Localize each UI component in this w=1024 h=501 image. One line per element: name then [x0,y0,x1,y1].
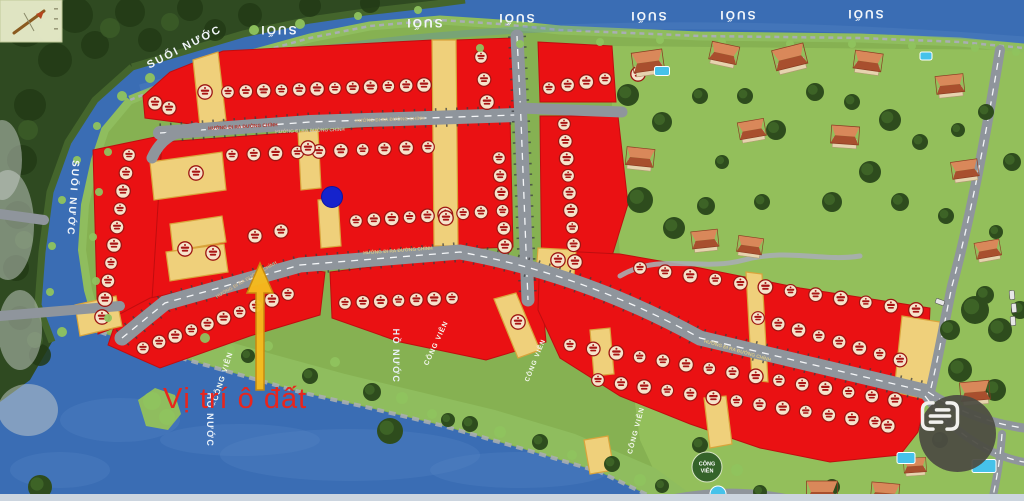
sold-stamp [475,51,488,64]
sold-stamp-mark [107,261,114,263]
sold-stamp-mark [349,85,357,87]
sold-stamp-mark [891,398,900,400]
sold-stamp [346,81,360,95]
sold-stamp [679,357,694,372]
sold-stamp-mark [413,300,419,302]
sold-stamp-mark [825,413,833,415]
sold-stamp-mark [362,297,364,299]
sold-stamp-mark [228,153,235,155]
sold-stamp-mark [640,385,649,387]
sold-stamp-ring [758,280,773,295]
sold-stamp-mark [271,151,280,153]
sold-stamp-mark [709,395,718,397]
tree [861,163,873,175]
sold-stamp-ring [367,213,381,227]
sold-stamp-mark [396,301,402,303]
sold-stamp-mark [582,80,591,82]
sold-stamp-mark [838,337,840,339]
sold-stamp-mark [497,191,506,193]
sold-stamp-ring [599,73,612,86]
sold-stamp-mark [431,300,438,302]
scan-button[interactable] [919,395,996,472]
tree [656,480,664,488]
sold-stamp-mark [787,289,794,291]
sold-stamp-mark [122,171,130,173]
sold-stamp-mark [107,276,109,278]
sold-stamp-mark [499,209,506,211]
sold-stamp-mark [736,397,738,399]
sold-stamp [832,335,846,349]
sold-stamp-ring [869,416,882,429]
tree [464,418,473,427]
tree [716,156,724,164]
sold-stamp [152,335,166,349]
bush [971,44,979,52]
river-label: SUỐI [629,9,666,24]
sold-stamp-mark [851,413,853,415]
sold-stamp-ring [427,291,442,306]
sold-stamp-ring [511,315,525,329]
sold-stamp-ring [661,384,674,397]
sold-stamp-mark [116,222,118,224]
tree [30,477,43,490]
sold-stamp [753,398,767,412]
sold-stamp-ring [832,335,846,349]
sold-stamp-ring [421,209,435,223]
sold-stamp-mark [502,247,509,249]
sold-stamp [480,95,495,110]
sold-stamp-mark [334,84,336,86]
tree [242,350,250,358]
sold-stamp-ring [775,401,790,416]
sold-stamp-ring [152,335,166,349]
sold-stamp-mark [181,247,189,249]
sold-stamp-mark [813,295,819,297]
sold-stamp-mark [751,374,760,376]
sold-stamp-mark [762,288,769,290]
sold-stamp-ring [494,186,509,201]
sold-stamp-mark [504,241,506,243]
sold-stamp-mark [204,87,206,89]
sold-stamp-mark [567,208,576,210]
sold-stamp-mark [855,346,864,348]
sold-stamp [409,293,423,307]
forest-tree [238,3,262,27]
sold-stamp-mark [236,310,243,312]
tree [619,86,631,98]
sold-stamp-ring [586,342,600,356]
sold-stamp-mark [189,331,195,333]
sold-stamp-mark [913,311,920,313]
bush [596,38,604,46]
sold-stamp-ring [417,78,432,93]
sold-stamp-mark [776,381,782,383]
sold-stamp [421,209,435,223]
tree [756,196,765,205]
sold-stamp-mark [316,84,318,86]
sold-stamp-mark [661,270,669,272]
sold-stamp-mark [555,261,561,263]
sold-stamp [206,246,220,260]
sold-stamp-ring [329,82,342,95]
sold-stamp-mark [409,213,411,215]
sold-stamp-mark [757,314,759,316]
sold-stamp-mark [318,147,320,149]
sold-stamp-mark [350,88,356,90]
sold-stamp-mark [284,292,291,294]
sold-stamp-ring [683,268,698,283]
forest-tree [14,89,46,121]
forest-tree [18,120,38,140]
sold-stamp-mark [592,344,594,346]
sold-stamp-mark [896,358,904,360]
sold-stamp-mark [659,358,667,360]
sold-stamp-ring [185,324,198,337]
tree [442,414,450,422]
sold-stamp-mark [445,213,447,215]
sold-stamp-mark [794,328,803,330]
sold-stamp-mark [643,382,645,384]
sold-stamp-ring [563,186,577,200]
legend-mark [54,8,58,10]
tree [942,322,953,333]
sold-stamp-mark [757,405,763,407]
sold-stamp-mark [915,305,917,307]
sold-stamp-ring [498,239,513,254]
sold-stamp-mark [837,299,844,301]
river-label: SUỐI [846,7,883,22]
sold-stamp-mark [168,103,170,105]
sold-stamp-mark [662,273,668,275]
sold-stamp-mark [571,260,580,262]
sold-stamp-mark [278,88,285,90]
sold-stamp-mark [712,277,719,279]
sold-stamp-mark [761,285,770,287]
sold-stamp-mark [484,103,491,105]
sold-stamp-ring [637,380,652,395]
sold-stamp-mark [755,371,757,373]
sold-stamp-mark [602,80,608,82]
sold-stamp [248,229,262,243]
sold-stamp-mark [554,258,562,260]
sold-stamp-mark [815,334,822,336]
sold-stamp-mark [639,264,641,266]
sold-stamp-ring [893,353,907,367]
sold-stamp-mark [790,287,792,289]
sold-stamp-ring [222,86,235,99]
sold-stamp-mark [381,150,387,152]
sold-stamp-ring [399,141,414,156]
sold-stamp-mark [204,325,210,327]
bush [249,25,259,35]
sold-stamp-ring [888,393,903,408]
sold-stamp-ring [226,149,239,162]
sold-stamp-mark [729,370,737,372]
sold-stamp-ring [730,395,743,408]
sold-stamp-mark [557,255,559,257]
forest-tree [38,43,72,77]
sold-stamp-mark [229,156,235,158]
bottom-edge-strip [0,494,1024,501]
sold-stamp-mark [272,154,279,156]
sold-stamp [771,317,785,331]
sold-stamp-mark [561,139,569,141]
tree [534,436,543,445]
sold-stamp-mark [497,176,503,178]
sold-stamp-mark [104,279,112,281]
sold-stamp-ring [373,294,388,309]
sold-stamp-mark [604,75,606,77]
sold-stamp-mark [171,334,180,336]
tree [665,219,677,231]
sold-stamp-mark [423,80,425,82]
sold-stamp-ring [822,408,836,422]
park-badge-label: VIÊN [701,467,714,475]
pool [920,52,932,60]
sold-stamp-mark [887,421,889,423]
sold-stamp-mark [314,90,321,92]
sold-stamp-mark [165,106,173,108]
sold-stamp [859,296,872,309]
sold-stamp-mark [344,299,346,301]
sold-stamp [110,220,124,234]
sold-stamp [427,291,442,306]
sold-stamp-mark [877,355,883,357]
sold-stamp-mark [501,244,510,246]
sold-stamp [334,143,349,158]
bush [104,314,112,322]
sold-stamp-mark [352,83,354,85]
sold-stamp [114,203,127,216]
sold-stamp-mark [869,397,875,399]
sold-stamp-mark [585,77,587,79]
sold-stamp-mark [385,84,392,86]
sold-stamp-ring [206,246,220,260]
sold-stamp [634,262,647,275]
sold-stamp-mark [545,86,552,88]
sold-stamp-mark [125,153,132,155]
water-highlight [160,424,320,456]
sold-stamp [561,78,575,92]
sold-stamp-mark [712,280,718,282]
sold-stamp-ring [439,211,453,225]
sold-stamp-mark [342,304,348,306]
fog [0,290,42,370]
sold-stamp-mark [752,377,759,379]
lake-label: HỒ NƯỚC [391,329,402,384]
sold-stamp-mark [359,148,366,150]
sold-stamp-mark [477,55,484,57]
tree [914,136,923,145]
sold-stamp-ring [752,312,765,325]
sold-stamp [222,86,235,99]
sold-stamp [216,311,231,326]
tree [1005,155,1015,165]
sold-stamp [726,366,740,380]
sold-stamp-ring [884,299,898,313]
sold-stamp-ring [564,203,579,218]
sold-stamp-ring [859,296,872,309]
sold-stamp [367,213,381,227]
sold-stamp-mark [517,317,519,319]
sold-stamp-mark [268,298,277,300]
tree [380,421,394,435]
bush [427,409,437,419]
tree [986,381,998,393]
sold-stamp-mark [190,326,192,328]
sold-stamp-mark [377,302,384,304]
sold-stamp-mark [442,216,450,218]
sold-stamp-ring [734,276,748,290]
sold-stamp-ring [592,374,605,387]
sold-stamp-ring [795,377,809,391]
tree [824,194,835,205]
tree [699,199,709,209]
sold-stamp [559,151,574,166]
sold-stamp-mark [687,276,694,278]
sold-stamp-mark [503,224,505,226]
tree [990,226,998,234]
sold-stamp-mark [816,337,822,339]
sold-stamp-mark [430,296,439,298]
sold-stamp-mark [686,273,695,275]
sold-stamp-ring [497,222,511,236]
sold-stamp-mark [828,410,830,412]
sold-stamp-mark [788,292,794,294]
sold-stamp-mark [795,331,802,333]
tree [754,486,762,494]
sold-stamp-mark [802,409,809,411]
sold-stamp-mark [562,142,568,144]
sold-stamp-mark [111,246,118,248]
sold-stamp-mark [729,373,735,375]
sold-stamp [497,222,511,236]
sold-stamp-ring [282,288,295,301]
sold-stamp [734,276,748,290]
sold-stamp-ring [350,215,363,228]
bush [494,426,506,438]
sold-stamp-mark [254,231,256,233]
sold-stamp-mark [775,325,781,327]
sold-stamp [799,405,812,418]
sold-stamp-mark [113,225,121,227]
sold-stamp-ring [356,143,369,156]
sold-stamp-mark [845,390,852,392]
park-badge-label: CÔNG [699,460,716,468]
sold-stamp-mark [734,402,740,404]
sold-stamp-mark [104,294,106,296]
scan-text-icon [919,395,961,437]
forest-tree [100,18,120,38]
sold-stamp-mark [836,343,842,345]
sold-stamp-ring [110,220,124,234]
sold-stamp-ring [474,205,488,219]
sold-stamp-mark [733,399,740,401]
sold-stamp-ring [105,257,118,270]
sold-stamp-mark [564,174,571,176]
sold-stamp [373,294,388,309]
sold-stamp-ring [771,317,785,331]
sold-stamp-ring [98,292,113,307]
sold-stamp-mark [195,168,197,170]
sold-stamp-mark [689,271,691,273]
sold-stamp-mark [305,149,311,151]
sold-stamp-mark [360,150,366,152]
photo-canvas: SUỐISUỐISUỐISUỐISUỐISUỐISUỐI NƯỚCSUỐI NƯ… [0,0,1024,501]
sold-stamp-mark [154,98,156,100]
sold-stamp-mark [481,80,487,82]
sold-stamp-ring [239,85,253,99]
water-highlight [10,452,110,488]
sold-stamp-mark [686,392,694,394]
sold-stamp-ring [480,95,495,110]
sold-stamp-ring [198,85,212,99]
sold-stamp-ring [301,141,315,155]
sold-stamp-mark [566,153,568,155]
sold-stamp-mark [798,382,806,384]
sold-stamp-mark [355,217,357,219]
sold-stamp-mark [897,361,903,363]
sold-stamp [748,369,763,384]
bush [354,12,362,20]
sold-stamp [350,215,363,228]
sold-stamp-mark [764,282,766,284]
sold-stamp-mark [641,388,648,390]
sold-stamp [119,166,133,180]
sold-stamp [268,146,283,161]
sold-stamp-mark [223,313,225,315]
sold-stamp [422,141,435,154]
sold-stamp [813,330,826,343]
sold-stamp-ring [334,143,349,158]
sold-stamp-mark [231,151,233,153]
sold-stamp-mark [894,395,896,397]
bush [567,450,577,460]
sold-stamp [633,350,646,363]
sold-stamp-mark [120,192,127,194]
sold-stamp-mark [689,389,691,391]
sold-stamp-mark [332,89,338,91]
sold-stamp-mark [105,282,111,284]
sold-stamp-ring [709,273,722,286]
sold-stamp [661,384,674,397]
legend-mark [54,28,58,30]
sold-stamp-mark [140,349,146,351]
sold-stamp [98,292,113,307]
sold-stamp [730,395,743,408]
sold-stamp-mark [664,391,670,393]
bush [104,148,112,156]
sold-stamp-mark [277,229,285,231]
sold-stamp-mark [172,337,179,339]
sold-stamp-ring [842,386,855,399]
sold-stamp-mark [571,246,577,248]
sold-stamp-mark [313,86,322,88]
sold-stamp-ring [845,411,860,426]
bush [145,73,155,83]
sold-stamp-ring [609,346,624,361]
sold-stamp-mark [736,281,744,283]
tree [808,85,818,95]
sold-stamp [752,312,765,325]
sold-stamp-ring [384,211,399,226]
sold-stamp-ring [909,303,924,318]
sold-stamp-ring [493,169,507,183]
sold-stamp-mark [868,394,876,396]
river-label: SUỐI [497,11,534,26]
sold-stamp-mark [380,296,382,298]
sold-stamp-ring [543,82,556,95]
